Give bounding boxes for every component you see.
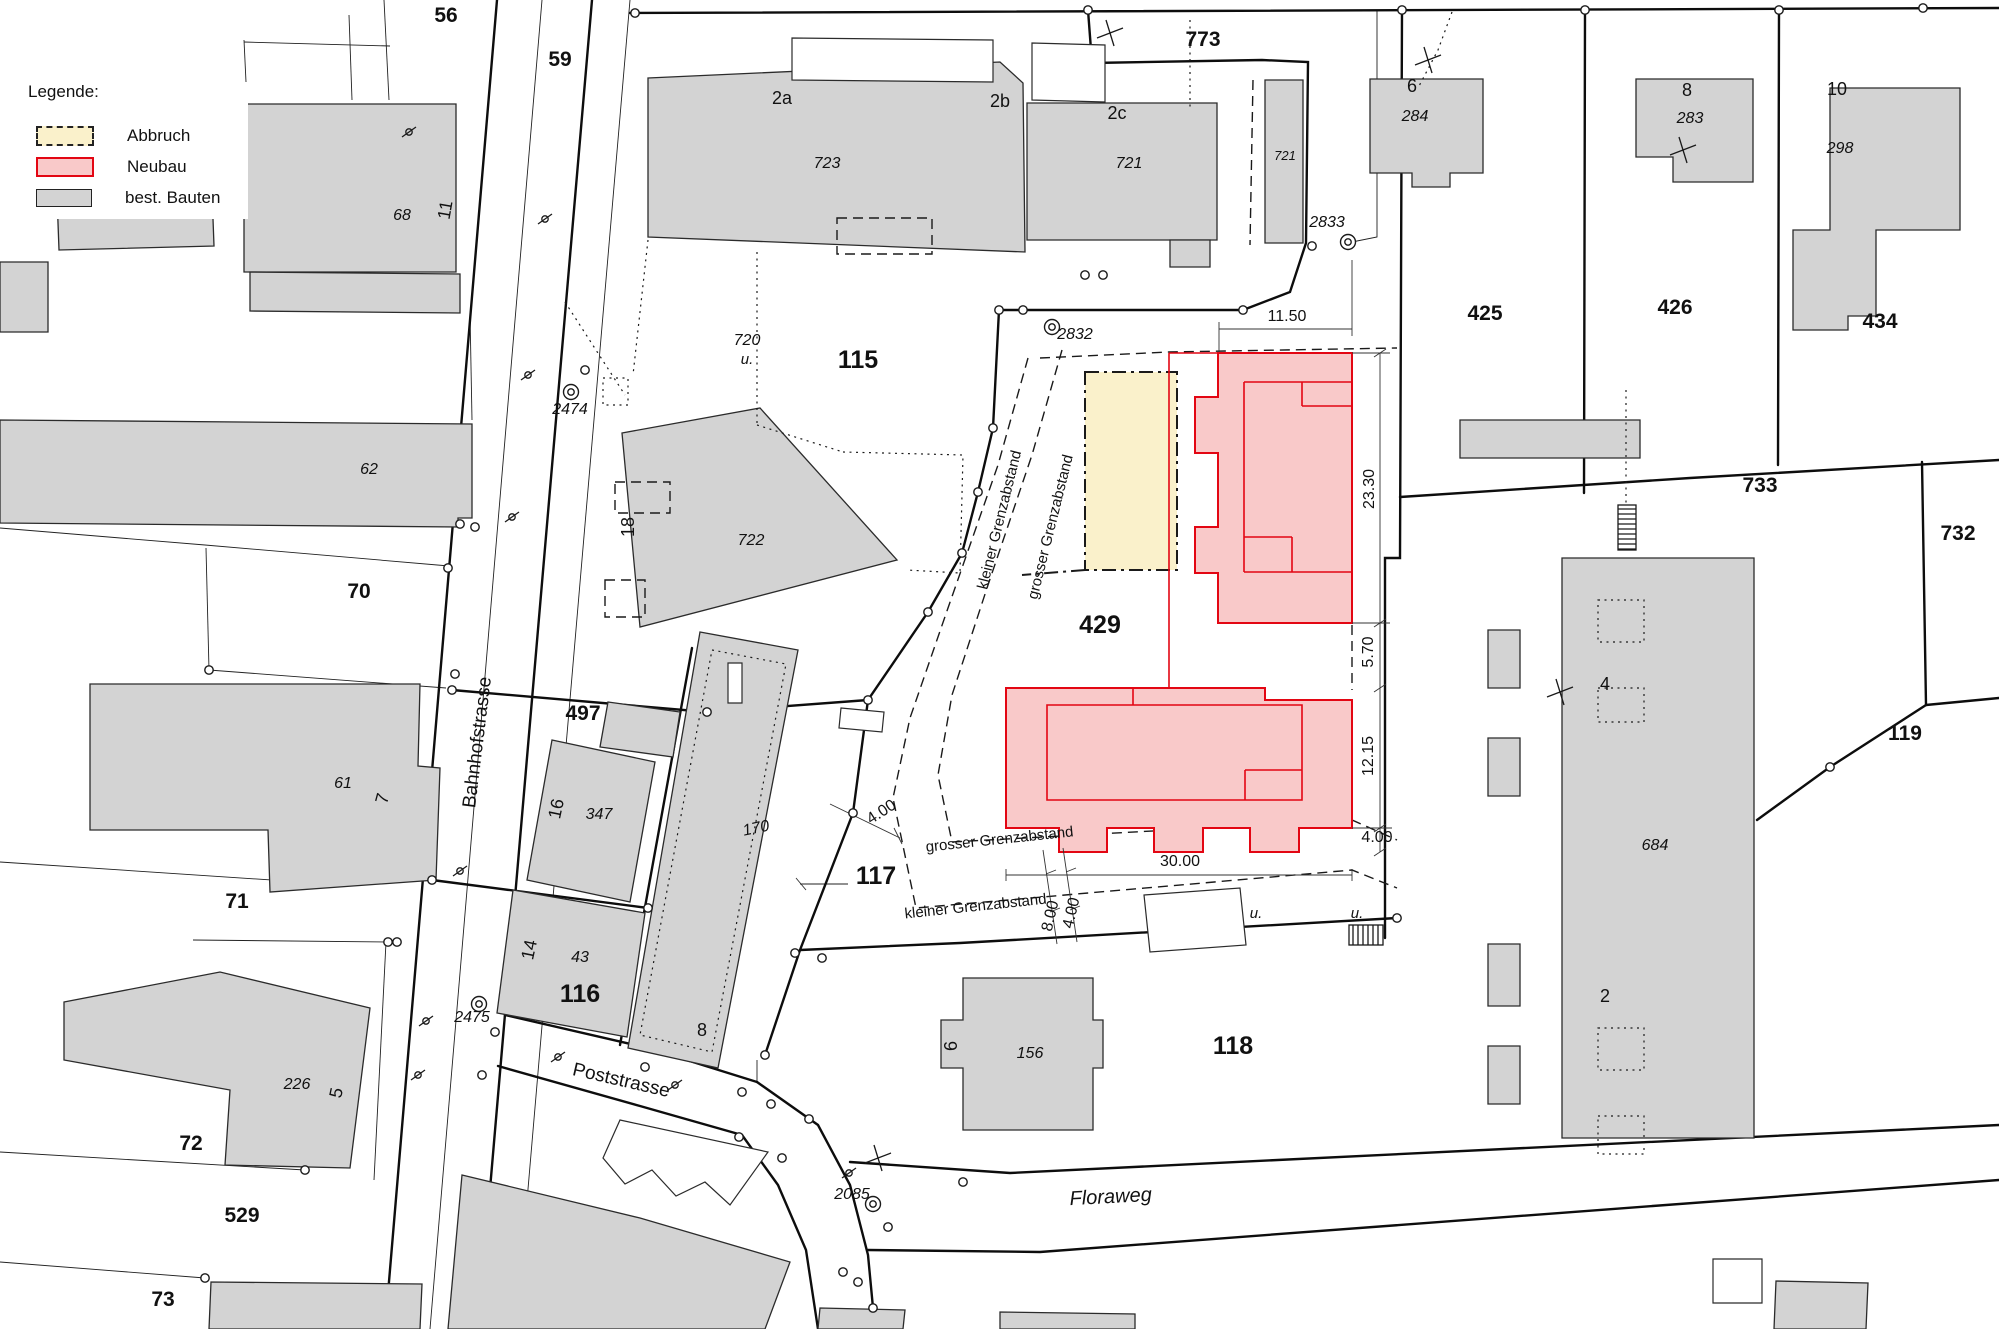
street-label-poststrasse: Poststrasse xyxy=(571,1059,672,1102)
annotation-kleiner-grenzabstand-2: kleiner Grenzabstand xyxy=(904,891,1048,923)
boundary-point-27 xyxy=(839,1268,847,1276)
boundary-point-26 xyxy=(778,1154,786,1162)
annotation-grosser-grenzabstand-1: grosser Grenzabstand xyxy=(1024,453,1076,601)
label-u-2: u. xyxy=(1351,905,1364,922)
boundary-point-28 xyxy=(854,1278,862,1286)
boundary-point-2 xyxy=(995,306,1003,314)
parcel-label-434: 434 xyxy=(1862,310,1897,333)
building-label-61: 61 xyxy=(334,775,352,792)
boundary-point-41 xyxy=(201,1274,209,1282)
building-label-156: 156 xyxy=(1017,1045,1044,1062)
legend-panel: Legende: Abbruch Neubau best. Bauten xyxy=(28,82,248,219)
legend-label-neubau: Neubau xyxy=(127,157,187,177)
house-number-2b: 2b xyxy=(990,91,1010,111)
building-170 xyxy=(628,632,798,1068)
dim-4-00-right: 4.00 xyxy=(1361,829,1392,846)
boundary-point-8 xyxy=(958,549,966,557)
house-number-14: 14 xyxy=(517,938,541,962)
building-label-722: 722 xyxy=(738,532,765,549)
parcel-line-thin-13 xyxy=(244,42,390,46)
annotation-kleiner-grenzabstand-1: kleiner Grenzabstand xyxy=(974,449,1025,591)
dotted-line-3 xyxy=(633,240,648,375)
building-61 xyxy=(90,684,440,892)
boundary-point-36 xyxy=(1919,4,1927,12)
legend-label-abbruch: Abbruch xyxy=(127,126,190,146)
building-small-sq-4 xyxy=(1488,1046,1520,1104)
boundary-point-3 xyxy=(1019,306,1027,314)
dotted-square-115 xyxy=(603,378,628,405)
house-number-16: 16 xyxy=(544,797,568,821)
parcel-line-thin-1 xyxy=(516,0,630,1329)
parcel-line-thick-17 xyxy=(1778,10,1779,465)
building-label-68: 68 xyxy=(393,207,411,224)
boundary-point-29 xyxy=(869,1304,877,1312)
parcel-label-497: 497 xyxy=(565,702,600,725)
boundary-point-38 xyxy=(384,938,392,946)
building-label-298: 298 xyxy=(1826,140,1854,157)
building-bottom-right xyxy=(1774,1281,1868,1329)
parcel-label-70: 70 xyxy=(347,580,370,603)
parcel-line-thin-7 xyxy=(374,942,386,1180)
boundary-point-32 xyxy=(1393,914,1401,922)
boundary-point-24 xyxy=(805,1115,813,1123)
parcel-label-426: 426 xyxy=(1657,296,1692,319)
house-number-2: 2 xyxy=(1600,986,1610,1006)
boundary-point-19 xyxy=(491,1028,499,1036)
legend-item-bestand: best. Bauten xyxy=(28,188,248,208)
building-284 xyxy=(1370,79,1483,187)
building-722 xyxy=(622,408,897,627)
house-number-2c: 2c xyxy=(1107,103,1126,123)
parcel-label-115: 115 xyxy=(838,346,878,374)
site-plan-page: 5659773425426434733732119497707172529731… xyxy=(0,0,1999,1329)
point-label-2085: 2085 xyxy=(833,1186,870,1203)
cross-mark-3 xyxy=(874,1145,882,1171)
boundary-point-37 xyxy=(1826,763,1834,771)
parcel-label-118: 118 xyxy=(1213,1032,1253,1060)
building-label-720-u: u. xyxy=(741,351,754,368)
parcel-line-thick-7 xyxy=(478,0,592,1329)
building-733-rect xyxy=(1460,420,1640,458)
boundary-point-43 xyxy=(451,670,459,678)
building-white-bottom-right xyxy=(1713,1259,1762,1303)
building-bottom-left xyxy=(209,1282,422,1329)
boundary-point-45 xyxy=(205,666,213,674)
boundary-point-17 xyxy=(818,954,826,962)
house-number-8: 8 xyxy=(697,1020,707,1040)
parcel-label-72: 72 xyxy=(179,1132,202,1155)
site-plan-svg: 5659773425426434733732119497707172529731… xyxy=(0,0,1999,1329)
parcel-line-thin-2 xyxy=(0,528,449,566)
legend-swatch-neubau xyxy=(36,157,94,177)
survey-point-2474-inner xyxy=(568,389,574,395)
building-298 xyxy=(1793,88,1960,330)
dim-30-00: 30.00 xyxy=(1160,853,1200,870)
building-label-721b: 721 xyxy=(1274,148,1296,163)
house-number-4: 4 xyxy=(1600,674,1610,694)
building-label-347: 347 xyxy=(586,806,614,823)
building-small-sq-1 xyxy=(1488,630,1520,688)
boundary-point-40 xyxy=(301,1166,309,1174)
boundary-point-44 xyxy=(444,564,452,572)
building-label-284: 284 xyxy=(1401,108,1429,125)
parcel-line-thick-18 xyxy=(1400,460,1999,497)
neubau-building-upper xyxy=(1195,353,1352,623)
street-label-bahnhofstrasse: Bahnhofstrasse xyxy=(459,676,496,810)
boundary-point-39 xyxy=(393,938,401,946)
parcel-label-73: 73 xyxy=(151,1288,174,1311)
house-number-11: 11 xyxy=(434,199,457,221)
parcel-line-thin-9 xyxy=(0,1262,205,1278)
dimension-tick-12 xyxy=(1066,868,1076,872)
boundary-point-31 xyxy=(959,1178,967,1186)
abbruch-building xyxy=(1085,372,1177,570)
cross-mark-1 xyxy=(1424,47,1432,73)
legend-label-bestand: best. Bauten xyxy=(125,188,220,208)
parcel-label-59: 59 xyxy=(548,48,571,71)
parcel-line-thick-12 xyxy=(850,1125,1999,1173)
building-label-723: 723 xyxy=(814,155,841,172)
building-62 xyxy=(0,420,472,527)
parcel-line-thick-13 xyxy=(868,1180,1999,1252)
boundary-point-15 xyxy=(644,904,652,912)
boundary-point-5 xyxy=(1308,242,1316,250)
dim-12-15: 12.15 xyxy=(1360,736,1377,776)
boundary-point-23 xyxy=(767,1100,775,1108)
dotted-line-6 xyxy=(1418,12,1452,88)
survey-point-2475-inner xyxy=(476,1001,482,1007)
legend-item-abbruch: Abbruch xyxy=(28,126,248,146)
legend-title: Legende: xyxy=(28,82,248,102)
boundary-point-22 xyxy=(738,1088,746,1096)
house-number-6b: 6 xyxy=(1407,76,1417,96)
house-number-10: 10 xyxy=(1827,79,1847,99)
building-label-684: 684 xyxy=(1642,837,1669,854)
survey-point-2085-inner xyxy=(870,1201,876,1207)
boundary-point-20 xyxy=(478,1071,486,1079)
parcel-label-119: 119 xyxy=(1888,722,1922,745)
parcel-label-116: 116 xyxy=(560,980,600,1008)
boundary-point-48 xyxy=(456,520,464,528)
parcel-line-thick-20 xyxy=(1926,698,1999,705)
street-label-floraweg: Floraweg xyxy=(1069,1184,1152,1210)
building-226 xyxy=(64,972,370,1168)
building-label-43: 43 xyxy=(571,949,589,966)
label-u-1: u. xyxy=(1250,905,1263,922)
parcel-line-thin-6 xyxy=(193,940,388,942)
building-label-283: 283 xyxy=(1676,110,1704,127)
house-number-2a: 2a xyxy=(772,88,793,108)
building-label-226: 226 xyxy=(283,1076,311,1093)
boundary-point-9 xyxy=(924,608,932,616)
legend-item-neubau: Neubau xyxy=(28,157,248,177)
boundary-point-7 xyxy=(974,488,982,496)
boundary-point-14 xyxy=(428,876,436,884)
house-number-8b: 8 xyxy=(1682,80,1692,100)
boundary-point-33 xyxy=(1398,6,1406,14)
boundary-point-46 xyxy=(1081,271,1089,279)
carport-north-723 xyxy=(792,38,993,82)
house-number-6: 6 xyxy=(941,1041,961,1051)
point-label-2475: 2475 xyxy=(453,1009,490,1026)
parcel-label-425: 425 xyxy=(1467,302,1502,325)
point-label-2474: 2474 xyxy=(551,401,588,418)
parcel-label-773: 773 xyxy=(1185,28,1220,51)
stair-symbol-684 xyxy=(1618,505,1636,550)
building-strip-270 xyxy=(250,272,460,313)
carport-north-721 xyxy=(1032,43,1105,102)
parcel-label-429: 429 xyxy=(1079,611,1121,639)
survey-point-2833-inner xyxy=(1345,239,1351,245)
dim-4-00-bottom: 4.00 xyxy=(1060,896,1084,930)
cross-mark-0 xyxy=(1106,20,1114,46)
building-zigzag xyxy=(603,1120,768,1205)
parcel-line-thick-19 xyxy=(1922,462,1926,705)
parcel-label-117: 117 xyxy=(856,862,896,890)
parcel-label-732: 732 xyxy=(1940,522,1975,545)
boundary-point-25 xyxy=(735,1133,743,1141)
boundary-point-42 xyxy=(581,366,589,374)
building-label-721: 721 xyxy=(1116,155,1143,172)
point-label-2833: 2833 xyxy=(1308,214,1345,231)
building-label-62: 62 xyxy=(360,461,378,478)
dim-23-30: 23.30 xyxy=(1361,469,1378,509)
building-68 xyxy=(244,104,456,272)
boundary-point-47 xyxy=(1099,271,1107,279)
boundary-point-35 xyxy=(1775,6,1783,14)
parcel-label-733: 733 xyxy=(1742,474,1777,497)
boundary-point-49 xyxy=(471,523,479,531)
boundary-point-12 xyxy=(703,708,711,716)
boundary-point-30 xyxy=(884,1223,892,1231)
building-bottom-2 xyxy=(1000,1312,1135,1329)
boundary-point-16 xyxy=(791,949,799,957)
building-label-720: 720 xyxy=(734,332,761,349)
building-283 xyxy=(1636,79,1753,182)
parcel-line-thick-0 xyxy=(630,8,1999,13)
boundary-point-0 xyxy=(631,9,639,17)
house-number-18: 18 xyxy=(618,517,638,537)
dim-11-50: 11.50 xyxy=(1268,308,1307,325)
legend-swatch-bestand xyxy=(36,189,92,207)
parcel-line-thin-3 xyxy=(206,548,209,670)
parcel-label-529: 529 xyxy=(224,1204,259,1227)
boundary-point-13 xyxy=(448,686,456,694)
parcel-label-56: 56 xyxy=(434,4,457,27)
legend-swatch-abbruch xyxy=(36,126,94,146)
shed-vertical xyxy=(728,663,742,703)
building-small-sq-3 xyxy=(1488,944,1520,1006)
boundary-point-10 xyxy=(864,696,872,704)
building-bottom-1 xyxy=(818,1308,905,1329)
point-label-2832: 2832 xyxy=(1056,326,1093,343)
building-sw-bottom xyxy=(448,1175,790,1329)
building-721-2c-tab xyxy=(1170,240,1210,267)
boundary-point-18 xyxy=(761,1051,769,1059)
building-small-sq-2 xyxy=(1488,738,1520,796)
boundary-point-1 xyxy=(1084,6,1092,14)
parcel-line-thin-11 xyxy=(349,15,352,100)
boundary-point-6 xyxy=(989,424,997,432)
boundary-point-11 xyxy=(849,809,857,817)
building-u-west xyxy=(1144,888,1246,952)
annotation-grosser-grenzabstand-2: grosser Grenzabstand xyxy=(925,823,1074,855)
building-left-edge xyxy=(0,262,48,332)
shed-horizontal xyxy=(839,708,884,732)
dimension-tick-10 xyxy=(1046,870,1056,874)
parcel-line-thick-14 xyxy=(800,918,1397,950)
building-ne-of-347 xyxy=(600,702,680,757)
boundary-point-21 xyxy=(641,1063,649,1071)
dashed-line-4 xyxy=(1250,80,1253,245)
survey-point-2832-inner xyxy=(1049,324,1055,330)
dim-5-70: 5.70 xyxy=(1360,636,1377,667)
parcel-line-thin-12 xyxy=(384,0,389,100)
boundary-point-34 xyxy=(1581,6,1589,14)
dotted-line-4 xyxy=(565,302,625,395)
parcel-label-71: 71 xyxy=(225,890,249,913)
boundary-point-4 xyxy=(1239,306,1247,314)
